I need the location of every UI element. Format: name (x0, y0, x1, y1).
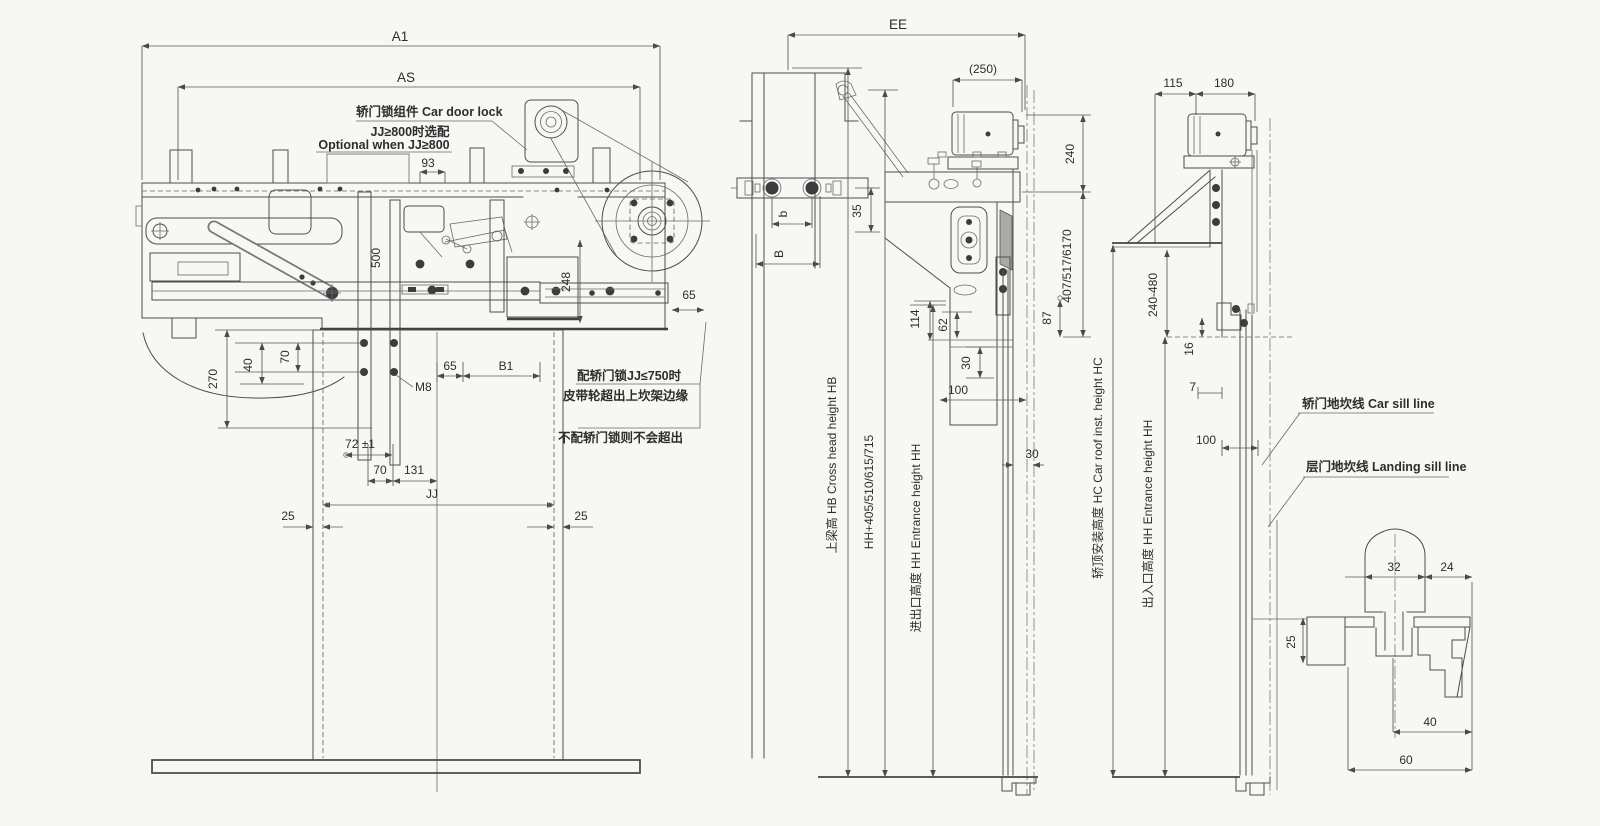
hc-bolt-3 (1212, 218, 1220, 226)
dim-32-label: 32 (1387, 560, 1401, 574)
note-belt-line1: 配轿门锁JJ≤750时 (577, 368, 682, 383)
dim-32-24-base (1345, 577, 1472, 770)
dim-a1-label: A1 (392, 29, 409, 44)
dim-72-label: 72 ±1 (345, 437, 375, 451)
hc-diagonal-braces (1127, 171, 1215, 243)
label-car-roof-height: 轿顶安装高度 HC Car roof inst. height HC (1090, 357, 1105, 579)
landing-sill-leader (1268, 477, 1449, 527)
dim-250-label: (250) (969, 62, 997, 76)
dim-114-label: 114 (908, 309, 922, 328)
hb-hanger-roller (951, 207, 987, 273)
door-coupler-linkage (402, 206, 540, 294)
hc-bolt-2 (1212, 201, 1220, 209)
hb-sill-bracket-hardware (928, 257, 1013, 347)
hb-sill-profile (1002, 777, 1036, 795)
dim-bb-ext (756, 196, 820, 268)
front-rail-bolts (196, 187, 610, 193)
dim-7-line (1198, 387, 1222, 399)
dim-b1-label: B1 (499, 359, 514, 373)
label-m8: M8 (415, 380, 432, 394)
detail-sill-groove (1376, 628, 1412, 656)
left-drive-assembly (150, 190, 540, 338)
belt-pulley (595, 162, 710, 282)
dim-270-label: 270 (206, 369, 220, 389)
hc-door-panel-lines (1240, 310, 1252, 775)
hc-sill-bracket (1217, 303, 1254, 330)
dim-b-label: b (776, 210, 790, 217)
note-belt-line3: 不配轿门锁则不会超出 (558, 430, 683, 445)
dim-248-label: 248 (559, 272, 573, 292)
note-optional-bracket (327, 154, 409, 183)
dim-100-label-hc: 100 (1196, 433, 1216, 447)
right-hanger-plates (490, 200, 668, 319)
label-crosshead-height: 上梁高 HB Cross head height HB (824, 377, 839, 554)
dim-62-label: 62 (936, 318, 950, 332)
label-entrance-height-hc: 出入口高度 HH Entrance height HH (1140, 420, 1155, 609)
hc-motor (1184, 114, 1257, 168)
hc-belt-lines (1252, 150, 1257, 312)
base-sill-plate (152, 760, 640, 773)
dim-30-vertical-label: 30 (959, 356, 973, 370)
dim-240-480-label: 240-480 (1146, 273, 1160, 317)
label-landing-sill-line: 层门地坎线 Landing sill line (1306, 459, 1466, 474)
detail-sill-channel (1418, 627, 1470, 697)
drawing-sheet: A1 AS 轿门锁组件 Car door lock JJ≥800时选配 Opti… (0, 0, 1600, 826)
note-belt-line2: 皮带轮超出上坎架边缘 (562, 388, 689, 403)
dim-180-label: 180 (1214, 76, 1234, 90)
note-optional-cn: JJ≥800时选配 (370, 124, 450, 139)
dim-131-label: 131 (404, 463, 424, 477)
dim-40-label: 40 (1423, 715, 1437, 729)
front-view: A1 AS 轿门锁组件 Car door lock JJ≥800时选配 Opti… (136, 29, 710, 792)
car-door-panel (313, 330, 563, 760)
dim-25-left-label: 25 (281, 509, 295, 523)
hc-bolt-1 (1212, 184, 1220, 192)
dim-240-label: 240 (1063, 144, 1077, 164)
detail-sill-support-block (1307, 617, 1345, 665)
dim-65-belt-label: 65 (682, 288, 696, 302)
dim-40-label: 40 (241, 358, 255, 372)
elevator-door-operator-drawing: A1 AS 轿门锁组件 Car door lock JJ≥800时选配 Opti… (0, 0, 1600, 826)
dim-250-ext (953, 80, 1022, 112)
label-hh-plus: HH+405/510/615/715 (862, 434, 876, 549)
dim-30-horizontal-label: 30 (1025, 447, 1039, 461)
car-roof-section-view: 115 180 240-480 16 7 100 (1090, 76, 1466, 795)
front-beam-left-hook (136, 206, 142, 226)
label-car-sill-line: 轿门地坎线 Car sill line (1302, 396, 1435, 411)
dim-bb-label: B (772, 250, 786, 258)
crosshead-section-view: b B 35 (731, 17, 1091, 795)
dim-100-label-hb: 100 (948, 383, 968, 397)
dim-16-label: 16 (1182, 342, 1196, 356)
dim-115-label: 115 (1163, 76, 1182, 90)
dim-25-right-label: 25 (574, 509, 588, 523)
label-m8-leader (396, 375, 413, 387)
detail-sill-top-left (1345, 617, 1374, 627)
hb-centerlines (1027, 85, 1034, 795)
sill-detail-view: 32 24 25 40 60 (1252, 529, 1472, 770)
dim-240-ext (1022, 115, 1091, 192)
operator-arm-assembly (146, 218, 342, 302)
hb-belt-hook (836, 81, 908, 177)
dim-24-label: 24 (1440, 560, 1454, 574)
hb-hanger-rail (740, 73, 858, 758)
dim-407-label: 407/517/6170 (1060, 229, 1074, 303)
hc-sill-profile (1236, 777, 1270, 795)
note-optional-en: Optional when JJ≥800 (318, 138, 449, 152)
dim-35-label: 35 (850, 204, 864, 218)
dim-65-track-label: 65 (443, 359, 457, 373)
dim-70-upper-label: 70 (278, 350, 292, 364)
dim-ee-label: EE (889, 17, 907, 32)
dim-93-label: 93 (421, 156, 435, 170)
dim-93-ext (420, 172, 445, 183)
dim-25-label: 25 (1284, 635, 1298, 649)
hc-bracket-column (1210, 170, 1222, 337)
dim-87-label: 87 (1040, 311, 1054, 325)
dim-70-lower-label: 70 (373, 463, 387, 477)
front-beam-top-tabs (170, 148, 610, 183)
dim-500-label: 500 (369, 248, 383, 268)
hb-motor (938, 112, 1024, 169)
front-beam-outline (142, 183, 665, 330)
label-entrance-height-hb: 进出口高度 HH Entrance height HH (908, 444, 923, 633)
note-car-door-lock: 轿门锁组件 Car door lock (356, 104, 503, 119)
car-sill-leader (1262, 413, 1434, 465)
detail-sill-top-right (1414, 617, 1470, 627)
dim-7-label: 7 (1189, 380, 1196, 394)
dim-60-label: 60 (1399, 753, 1413, 767)
car-door-lock-pulley (512, 100, 578, 177)
dim-jj-label: JJ (426, 487, 438, 501)
dim-as-label: AS (397, 70, 415, 85)
dim-left-ext-lines (215, 330, 372, 428)
